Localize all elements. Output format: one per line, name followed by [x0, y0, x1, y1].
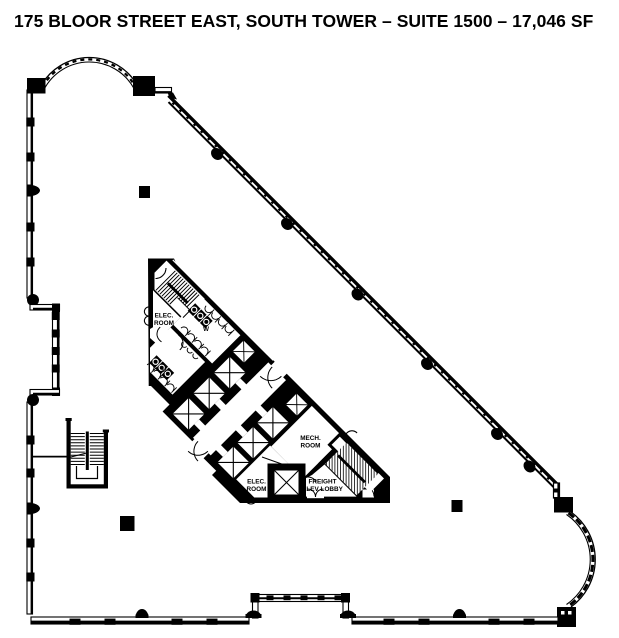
svg-text:ELEC.: ELEC. — [155, 313, 174, 320]
svg-text:FREIGHT: FREIGHT — [308, 479, 336, 486]
svg-text:ELEC.: ELEC. — [247, 479, 266, 486]
svg-text:MECH.: MECH. — [300, 435, 321, 442]
svg-text:ROOM: ROOM — [301, 443, 321, 450]
svg-text:ROOM: ROOM — [247, 486, 267, 493]
svg-text:175 BLOOR STREET EAST, SOUTH T: 175 BLOOR STREET EAST, SOUTH TOWER – SUI… — [14, 11, 594, 31]
svg-text:M: M — [161, 367, 166, 374]
svg-text:ROOM: ROOM — [154, 320, 174, 327]
svg-text:ELEV LOBBY: ELEV LOBBY — [302, 486, 344, 493]
svg-text:W: W — [203, 326, 209, 333]
